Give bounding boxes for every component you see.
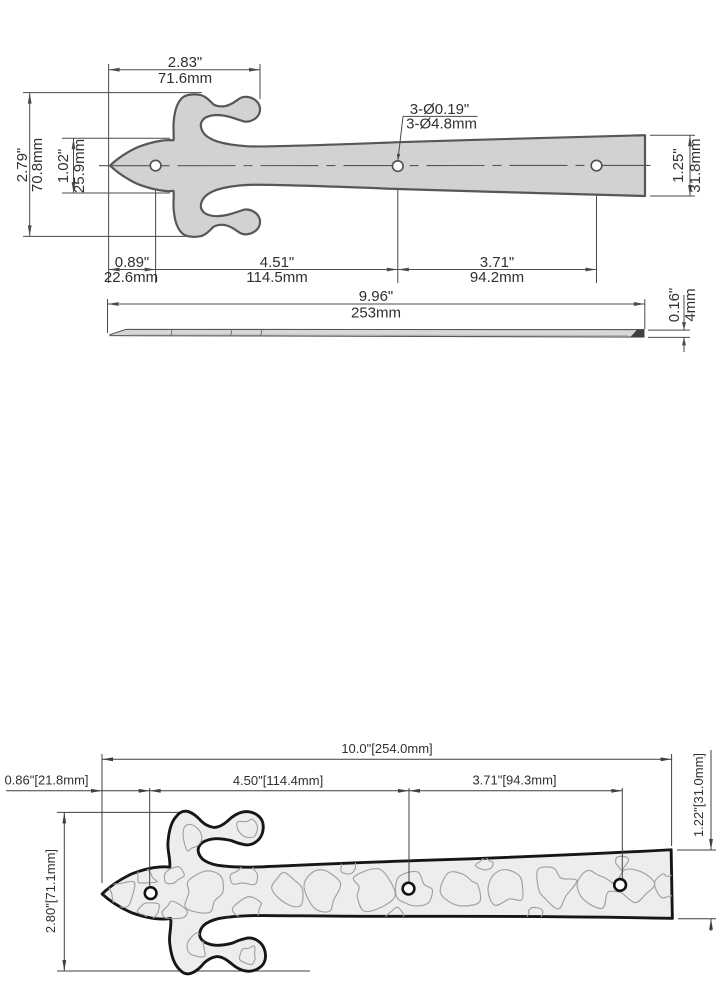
svg-text:4mm: 4mm	[682, 288, 699, 321]
svg-text:4.50"[114.4mm]: 4.50"[114.4mm]	[233, 773, 323, 788]
svg-text:253mm: 253mm	[351, 305, 401, 322]
svg-text:114.5mm: 114.5mm	[246, 269, 307, 286]
svg-text:2.83": 2.83"	[168, 54, 203, 71]
svg-text:31.8mm: 31.8mm	[687, 139, 704, 193]
svg-text:0.16": 0.16"	[666, 288, 683, 323]
svg-text:1.22"[31.0mm]: 1.22"[31.0mm]	[691, 753, 706, 837]
svg-text:9.96": 9.96"	[359, 288, 394, 305]
svg-text:71.6mm: 71.6mm	[158, 70, 212, 87]
svg-text:70.8mm: 70.8mm	[29, 138, 46, 192]
svg-text:1.25": 1.25"	[670, 148, 687, 183]
svg-text:3.71"[94.3mm]: 3.71"[94.3mm]	[472, 773, 556, 788]
svg-text:1.02": 1.02"	[55, 149, 72, 184]
svg-text:94.2mm: 94.2mm	[470, 269, 524, 286]
svg-text:0.86"[21.8mm]: 0.86"[21.8mm]	[4, 773, 88, 788]
svg-text:2.80"[71.1mm]: 2.80"[71.1mm]	[43, 849, 58, 933]
svg-text:10.0"[254.0mm]: 10.0"[254.0mm]	[341, 741, 432, 756]
svg-text:3-Ø4.8mm: 3-Ø4.8mm	[406, 116, 477, 133]
svg-text:22.6mm: 22.6mm	[104, 269, 158, 286]
svg-text:25.9mm: 25.9mm	[71, 139, 88, 193]
